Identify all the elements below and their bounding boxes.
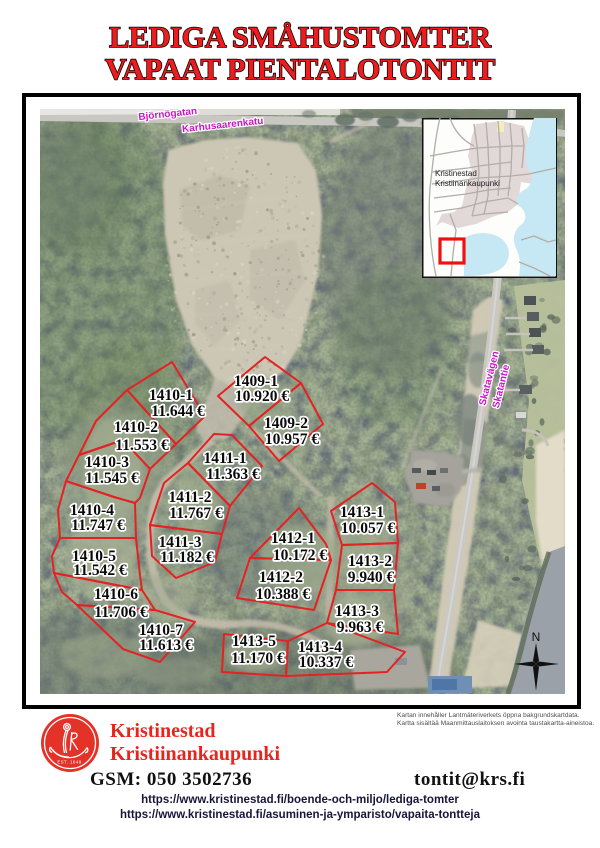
svg-text:1412-2: 1412-2 [259,569,303,586]
svg-text:11.706 €: 11.706 € [94,604,148,621]
svg-text:11.542 €: 11.542 € [73,562,127,579]
svg-text:11.747 €: 11.747 € [71,517,125,534]
svg-text:1410-3: 1410-3 [85,454,129,471]
svg-text:1412-1: 1412-1 [271,530,315,547]
svg-text:11.613 €: 11.613 € [139,637,193,654]
svg-text:10.388 €: 10.388 € [256,586,311,603]
svg-text:1413-3: 1413-3 [335,603,379,620]
svg-text:EST. 1649: EST. 1649 [57,760,81,765]
svg-text:1409-2: 1409-2 [264,415,308,432]
svg-text:10.172 €: 10.172 € [273,547,328,564]
svg-text:1410-6: 1410-6 [94,586,138,603]
svg-text:11.644 €: 11.644 € [151,403,205,420]
svg-text:10.337 €: 10.337 € [299,654,354,671]
svg-text:11.363 €: 11.363 € [206,466,260,483]
svg-text:1413-1: 1413-1 [340,504,384,521]
svg-text:1410-1: 1410-1 [149,387,193,404]
svg-text:Kristiinankaupunki: Kristiinankaupunki [435,179,500,188]
svg-text:10.057 €: 10.057 € [341,520,396,537]
svg-text:1411-2: 1411-2 [168,489,211,506]
svg-text:1413-2: 1413-2 [348,553,392,570]
svg-text:9.940 €: 9.940 € [348,569,395,586]
svg-text:11.170 €: 11.170 € [231,650,285,667]
svg-text:N: N [532,630,541,644]
svg-text:1411-1: 1411-1 [203,450,246,467]
svg-text:11.553 €: 11.553 € [115,437,169,454]
svg-text:11.767 €: 11.767 € [169,505,223,522]
svg-text:11.182 €: 11.182 € [160,549,214,566]
svg-text:9.963 €: 9.963 € [337,619,384,636]
svg-text:10.957 €: 10.957 € [265,431,320,448]
svg-text:Kristinestad: Kristinestad [435,169,477,178]
svg-text:11.545 €: 11.545 € [85,470,139,487]
svg-text:10.920 €: 10.920 € [235,388,290,405]
svg-text:1410-2: 1410-2 [114,419,158,436]
svg-text:1413-5: 1413-5 [232,633,276,650]
